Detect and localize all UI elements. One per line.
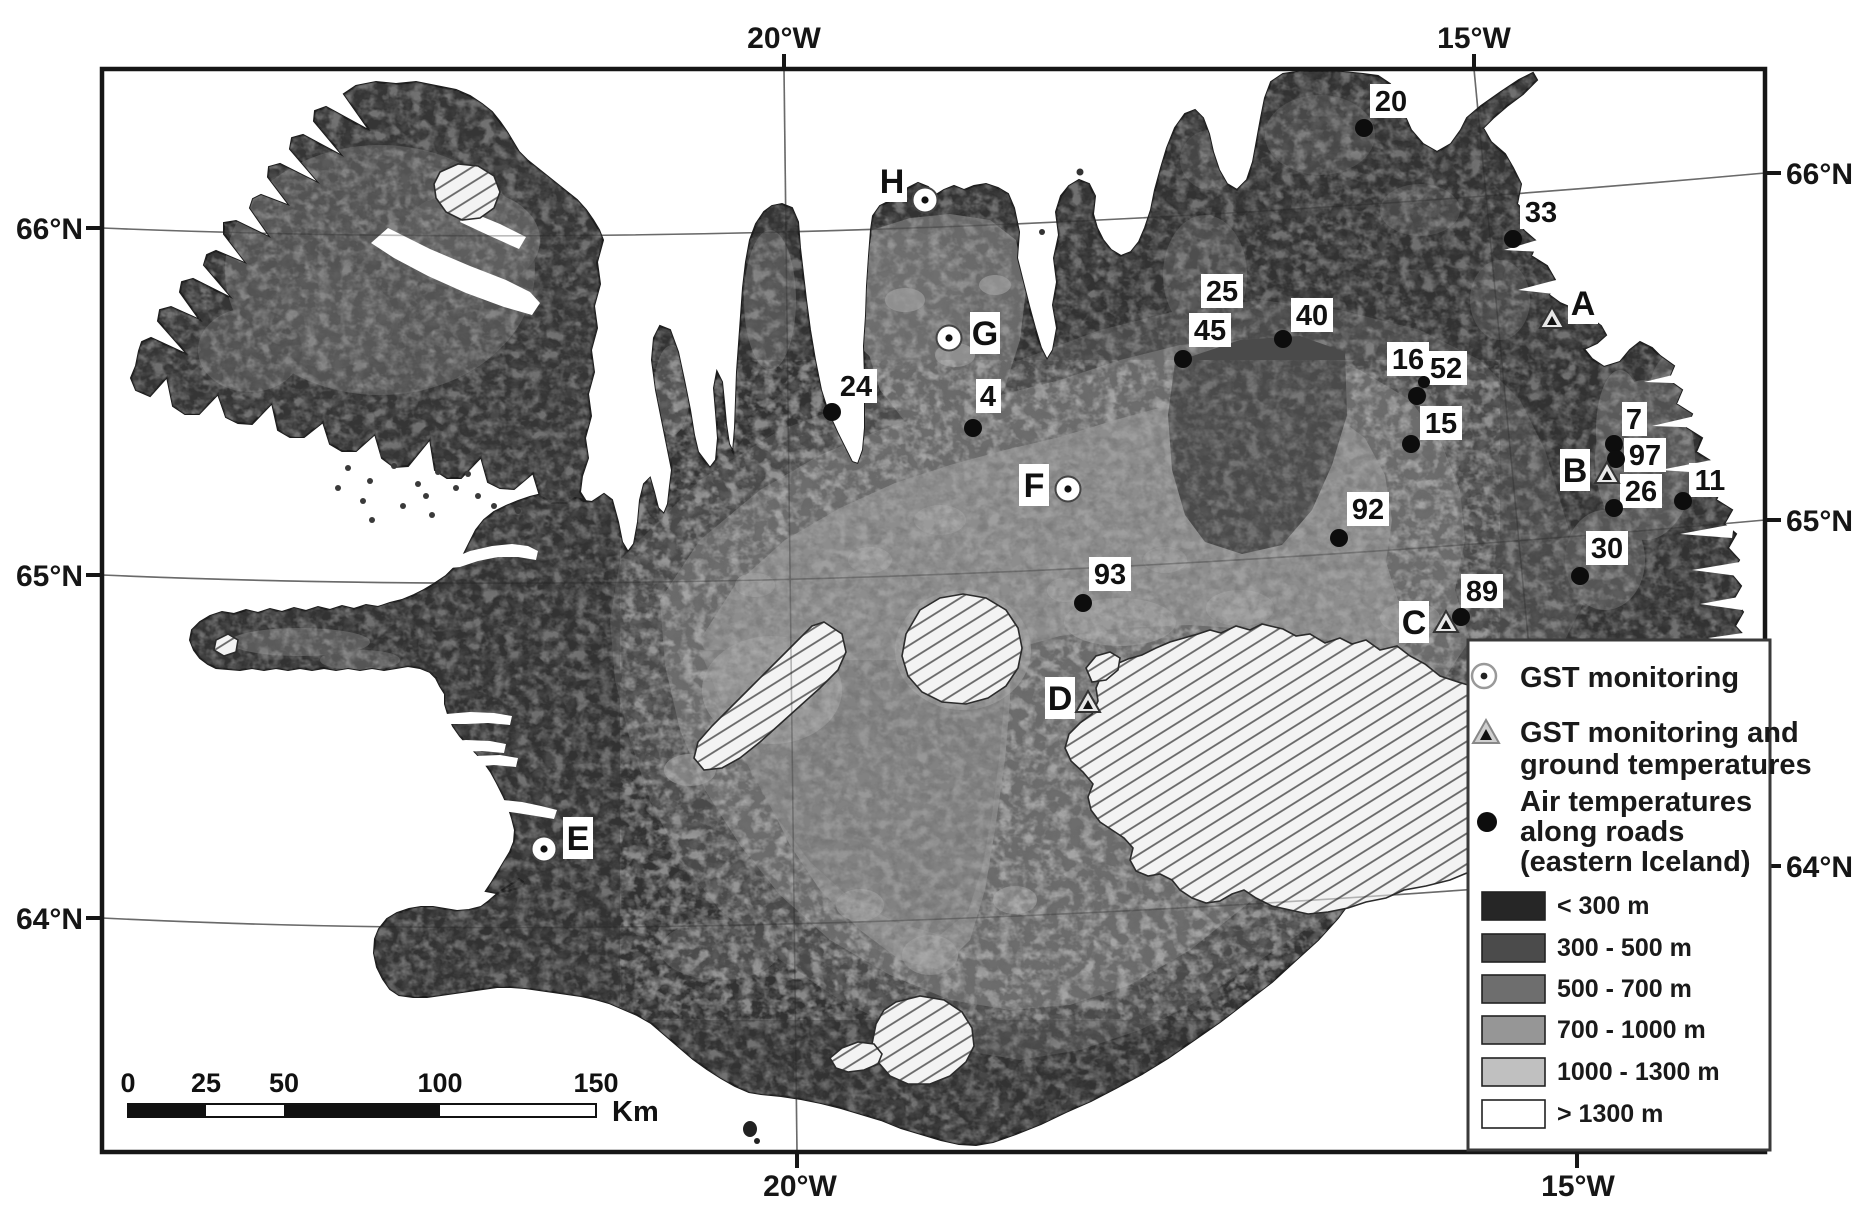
svg-text:89: 89	[1466, 576, 1498, 608]
svg-text:25: 25	[191, 1068, 221, 1098]
svg-text:66°N: 66°N	[1786, 158, 1853, 191]
svg-text:along roads: along roads	[1520, 816, 1684, 848]
svg-text:Air temperatures: Air temperatures	[1520, 786, 1752, 818]
svg-text:40: 40	[1296, 300, 1328, 332]
svg-text:> 1300 m: > 1300 m	[1557, 1100, 1663, 1128]
svg-text:7: 7	[1626, 404, 1642, 436]
svg-text:300 - 500 m: 300 - 500 m	[1557, 934, 1692, 962]
svg-text:66°N: 66°N	[16, 213, 83, 246]
svg-text:65°N: 65°N	[16, 560, 83, 593]
svg-text:26: 26	[1625, 476, 1657, 508]
svg-text:F: F	[1024, 467, 1045, 505]
svg-text:C: C	[1402, 604, 1427, 642]
svg-text:1000 - 1300 m: 1000 - 1300 m	[1557, 1058, 1720, 1086]
svg-text:20°W: 20°W	[763, 1170, 837, 1203]
svg-text:92: 92	[1352, 494, 1384, 526]
svg-text:64°N: 64°N	[16, 903, 83, 936]
svg-text:24: 24	[840, 371, 872, 403]
svg-text:15°W: 15°W	[1541, 1170, 1615, 1203]
svg-text:700 - 1000 m: 700 - 1000 m	[1557, 1016, 1706, 1044]
svg-text:(eastern Iceland): (eastern Iceland)	[1520, 846, 1750, 878]
svg-text:15: 15	[1425, 408, 1457, 440]
svg-text:15°W: 15°W	[1437, 22, 1511, 55]
svg-text:Km: Km	[612, 1096, 659, 1128]
svg-text:11: 11	[1695, 465, 1726, 497]
svg-text:A: A	[1571, 285, 1596, 323]
svg-text:93: 93	[1094, 559, 1126, 591]
svg-text:20°W: 20°W	[747, 22, 821, 55]
svg-text:52: 52	[1430, 353, 1462, 385]
svg-text:GST monitoring and: GST monitoring and	[1520, 717, 1799, 749]
svg-text:45: 45	[1194, 315, 1226, 347]
svg-text:0: 0	[120, 1068, 135, 1098]
svg-text:B: B	[1563, 452, 1588, 490]
svg-text:E: E	[567, 820, 590, 858]
svg-text:150: 150	[573, 1068, 618, 1098]
svg-text:25: 25	[1206, 276, 1238, 308]
svg-text:< 300 m: < 300 m	[1557, 892, 1649, 920]
svg-text:500 - 700 m: 500 - 700 m	[1557, 975, 1692, 1003]
svg-text:G: G	[972, 315, 998, 353]
svg-text:ground temperatures: ground temperatures	[1520, 749, 1812, 781]
svg-text:4: 4	[980, 381, 996, 413]
svg-text:16: 16	[1392, 344, 1424, 376]
svg-text:100: 100	[417, 1068, 462, 1098]
svg-text:64°N: 64°N	[1786, 851, 1853, 884]
svg-text:H: H	[880, 163, 905, 201]
svg-text:97: 97	[1629, 440, 1661, 472]
svg-text:GST monitoring: GST monitoring	[1520, 662, 1739, 694]
svg-text:33: 33	[1525, 197, 1557, 229]
svg-text:50: 50	[269, 1068, 299, 1098]
svg-text:D: D	[1048, 680, 1073, 718]
svg-text:30: 30	[1591, 533, 1623, 565]
svg-text:65°N: 65°N	[1786, 505, 1853, 538]
svg-text:20: 20	[1375, 86, 1407, 118]
